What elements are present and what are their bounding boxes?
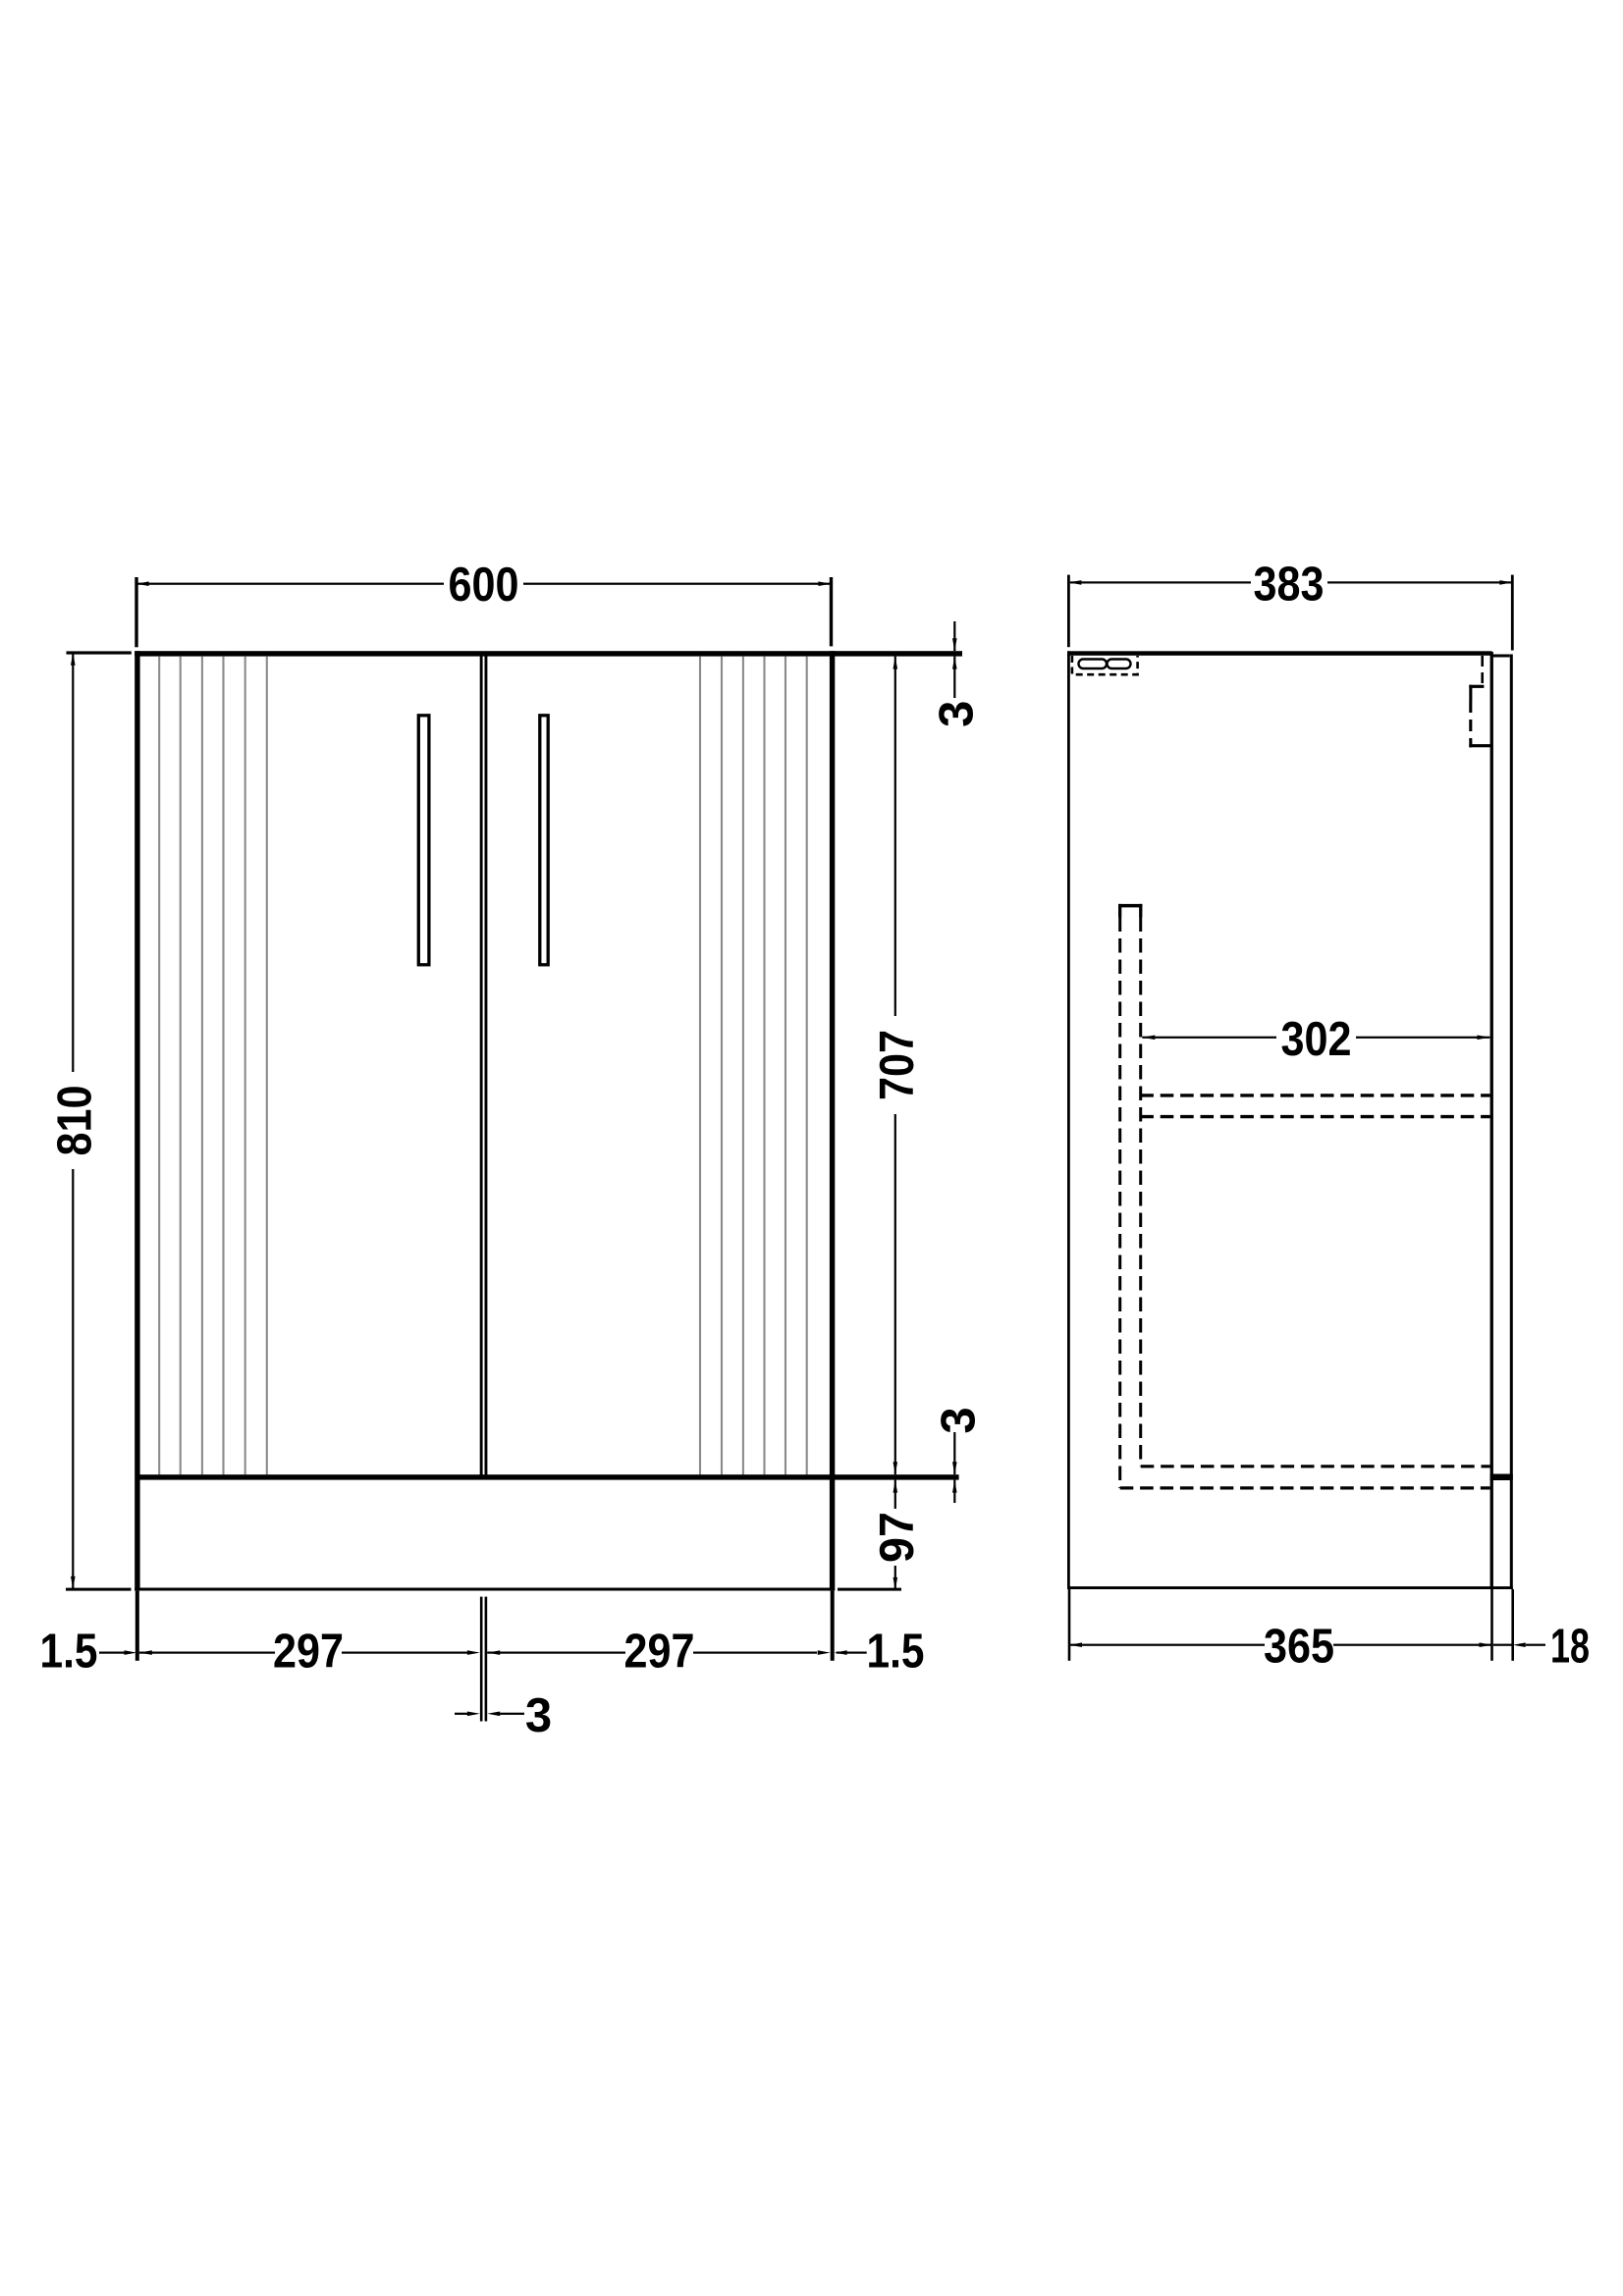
svg-text:302: 302 — [1281, 1013, 1352, 1066]
svg-text:707: 707 — [871, 1030, 924, 1100]
svg-text:18: 18 — [1550, 1621, 1590, 1674]
svg-text:1.5: 1.5 — [40, 1626, 98, 1679]
svg-text:3: 3 — [930, 701, 983, 727]
svg-text:600: 600 — [449, 559, 519, 612]
svg-text:3: 3 — [525, 1689, 552, 1742]
svg-text:810: 810 — [48, 1086, 101, 1156]
svg-text:297: 297 — [624, 1626, 695, 1679]
svg-text:3: 3 — [933, 1407, 986, 1433]
svg-text:383: 383 — [1254, 558, 1325, 611]
svg-text:365: 365 — [1264, 1621, 1334, 1674]
svg-text:1.5: 1.5 — [867, 1626, 925, 1679]
svg-text:97: 97 — [871, 1512, 924, 1563]
svg-text:297: 297 — [273, 1626, 344, 1679]
